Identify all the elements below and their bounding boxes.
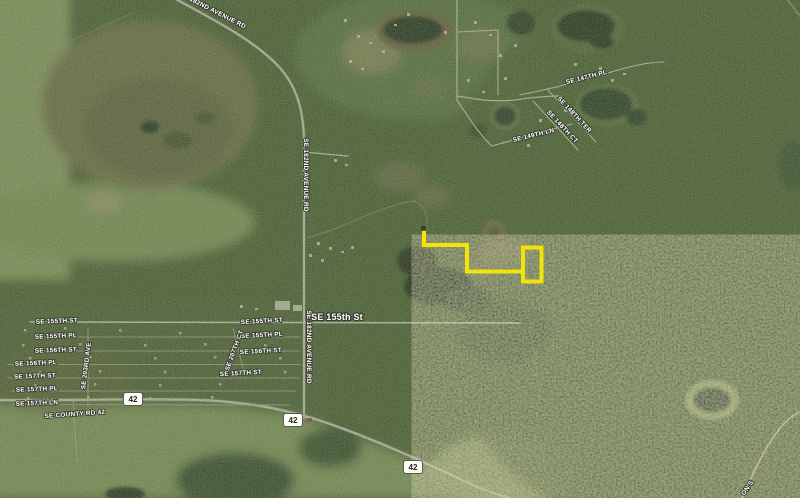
road-label-se-155th-pl-w: SE 155TH PL (35, 332, 77, 340)
road-label-se-157th-pl: SE 157TH PL (16, 385, 58, 393)
svg-text:42: 42 (129, 395, 138, 404)
route-shield-42-center: 42 (284, 414, 303, 427)
road-label-se-155th-st-major: SE 155th St (311, 312, 363, 322)
svg-text:42: 42 (289, 416, 298, 425)
svg-text:42: 42 (409, 463, 418, 472)
map-svg: SE 182ND AVENUE RD SE 182ND AVENUE RD SE… (0, 0, 800, 498)
route-shield-42-west: 42 (124, 393, 143, 406)
road-label-se-157th-st-w: SE 157TH ST (14, 372, 56, 380)
road-label-se-156th-st-w: SE 156TH ST (35, 346, 77, 354)
road-label-se-157th-ln: SE 157TH LN (16, 399, 59, 407)
route-shield-42-east: 42 (404, 461, 423, 474)
road-label-se-182nd-avenue-rd-mid: SE 182ND AVENUE RD (302, 138, 309, 212)
road-label-se-156th-pl: SE 156TH PL (15, 359, 57, 367)
road-label-se-155th-st-w: SE 155TH ST (36, 317, 78, 325)
satellite-map-canvas[interactable]: SE 182ND AVENUE RD SE 182ND AVENUE RD SE… (0, 0, 800, 498)
